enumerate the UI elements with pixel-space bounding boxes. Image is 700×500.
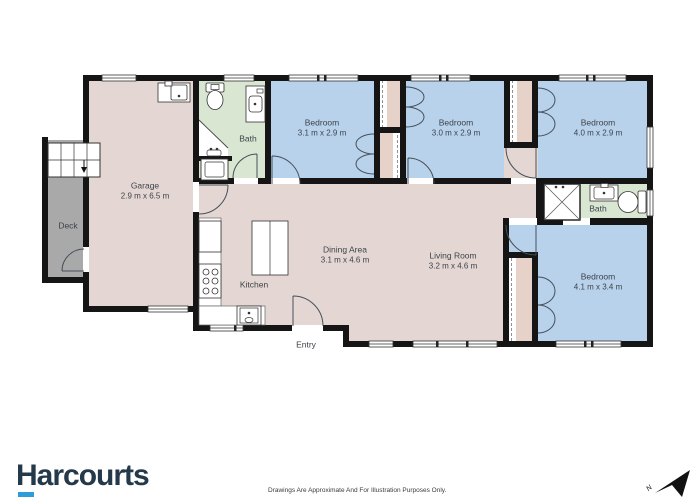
toilet-icon	[206, 83, 224, 110]
wall-segment	[532, 75, 538, 148]
toilet-icon	[618, 191, 646, 213]
wall-segment	[265, 75, 271, 184]
door-gap-entry	[292, 325, 323, 331]
wall-segment	[504, 75, 510, 148]
wall-segment	[374, 127, 406, 133]
door-gap-bedroom-4	[509, 218, 537, 225]
wall-segment	[83, 75, 89, 143]
door-gap-bedroom-2	[407, 178, 433, 184]
hall-floor	[193, 178, 545, 225]
vanity-icon	[246, 86, 265, 122]
compass	[655, 470, 690, 497]
wall-segment	[42, 277, 89, 283]
laundry-tub-icon	[201, 159, 228, 180]
floorplan-page: Garage2.9 m x 6.5 m Deck Bath Bedroom3.1…	[0, 0, 700, 500]
garage-floor	[83, 75, 199, 312]
fridge-icon	[199, 221, 221, 252]
door-gap-bedroom-1	[271, 178, 300, 184]
logo-underline	[18, 492, 34, 497]
wall-segment	[536, 178, 544, 225]
shower-icon	[544, 184, 580, 220]
wall-segment	[83, 177, 89, 247]
north-arrow-icon	[655, 470, 690, 497]
wall-segment	[532, 252, 538, 347]
disclaimer-text: Drawings Are Approximate And For Illustr…	[268, 487, 446, 494]
wall-segment	[42, 137, 48, 283]
door-gap-garage	[193, 182, 199, 212]
floorplan-drawing	[0, 0, 700, 500]
bedroom-2-floor	[400, 75, 510, 184]
harcourts-logo: Harcourts	[16, 459, 149, 493]
vanity-icon	[590, 184, 618, 202]
bedroom-1-floor	[265, 75, 380, 184]
wall-segment	[504, 142, 538, 148]
door-gap-bath-1	[234, 178, 258, 184]
wall-segment	[193, 75, 199, 182]
faucet-icon	[165, 81, 172, 86]
stairs-icon	[48, 143, 100, 177]
wall-segment	[193, 212, 199, 331]
door-gap-deck	[83, 247, 89, 272]
door-gap-hall	[511, 178, 536, 184]
